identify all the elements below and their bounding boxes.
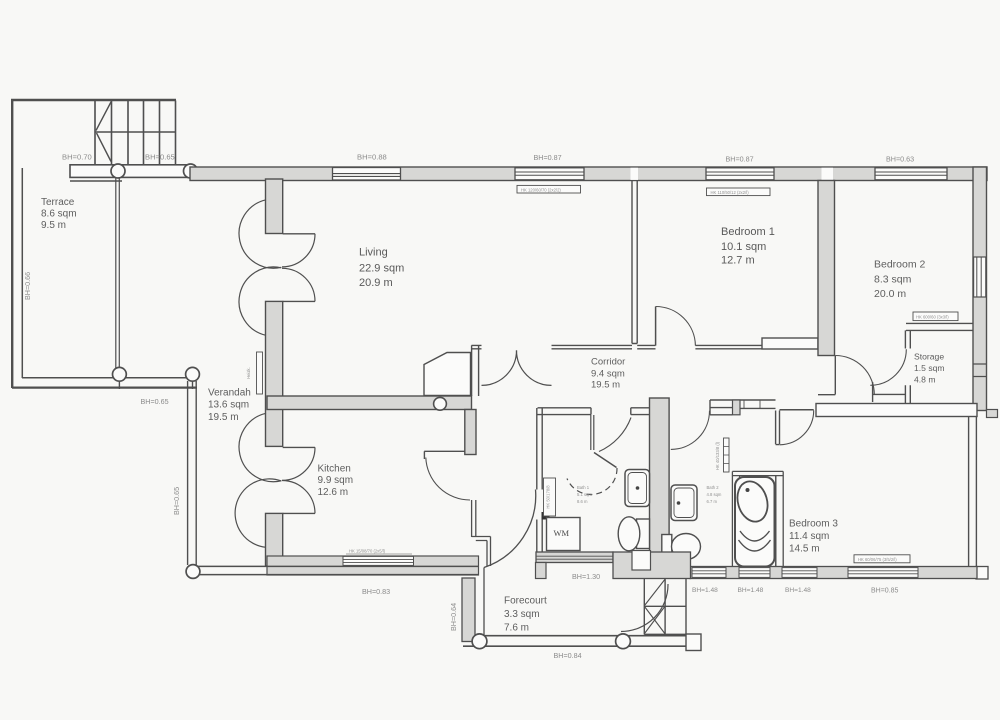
svg-text:Verandah: Verandah <box>208 388 251 399</box>
svg-text:5.1 sqm: 5.1 sqm <box>577 492 592 497</box>
svg-text:12.7 m: 12.7 m <box>721 254 755 266</box>
svg-text:BH=0.66: BH=0.66 <box>23 272 32 300</box>
svg-text:BH=1.30: BH=1.30 <box>572 572 600 581</box>
svg-text:Bedroom 2: Bedroom 2 <box>874 259 926 271</box>
svg-text:Corridor: Corridor <box>591 357 625 368</box>
svg-text:19.5 m: 19.5 m <box>591 380 620 391</box>
svg-text:BH=0.87: BH=0.87 <box>726 155 754 164</box>
svg-text:HK 15/08/70 (2x5/l): HK 15/08/70 (2x5/l) <box>349 549 386 554</box>
svg-text:Bath 1: Bath 1 <box>577 485 590 490</box>
svg-text:HK 60/06/75 (3/5/2/l): HK 60/06/75 (3/5/2/l) <box>858 557 897 562</box>
svg-text:Bedroom 3: Bedroom 3 <box>789 519 838 530</box>
svg-text:6.7 m: 6.7 m <box>707 499 718 504</box>
svg-text:Bedroom 1: Bedroom 1 <box>721 226 775 238</box>
svg-text:Terrace: Terrace <box>41 197 75 208</box>
svg-text:HK 120/60/70 (2x2/2): HK 120/60/70 (2x2/2) <box>521 187 561 192</box>
svg-text:BH=0.83: BH=0.83 <box>362 587 390 596</box>
svg-text:9.9 sqm: 9.9 sqm <box>318 475 354 486</box>
svg-text:HK 110/50/12 (2x2/l): HK 110/50/12 (2x2/l) <box>711 190 750 195</box>
svg-text:14.5 m: 14.5 m <box>789 544 820 555</box>
svg-text:BH=0.87: BH=0.87 <box>534 153 562 162</box>
svg-text:4.8 m: 4.8 m <box>914 375 936 385</box>
svg-text:Living: Living <box>359 247 388 259</box>
svg-text:1.5 sqm: 1.5 sqm <box>914 363 945 373</box>
svg-text:Kitchen: Kitchen <box>318 464 351 475</box>
svg-text:22.9 sqm: 22.9 sqm <box>359 262 404 274</box>
svg-text:12.6 m: 12.6 m <box>318 487 349 498</box>
svg-text:20.0 m: 20.0 m <box>874 288 906 300</box>
svg-text:3.3 sqm: 3.3 sqm <box>504 609 540 620</box>
svg-text:BH=0.70: BH=0.70 <box>62 153 92 162</box>
svg-text:8.6 sqm: 8.6 sqm <box>41 209 77 220</box>
svg-text:Bath 2: Bath 2 <box>707 485 720 490</box>
svg-text:BH=0.65: BH=0.65 <box>172 487 181 515</box>
svg-text:WM: WM <box>554 528 570 538</box>
svg-text:Heizk.: Heizk. <box>246 367 251 379</box>
svg-text:BH=0.85: BH=0.85 <box>871 588 899 595</box>
svg-text:BH=1.48: BH=1.48 <box>692 587 718 594</box>
svg-text:4.8 sqm: 4.8 sqm <box>707 492 722 497</box>
svg-text:9.4 sqm: 9.4 sqm <box>591 369 625 380</box>
svg-text:19.5 m: 19.5 m <box>208 412 239 423</box>
svg-text:HK 40/133/8 (l): HK 40/133/8 (l) <box>715 441 720 470</box>
svg-text:13.6 sqm: 13.6 sqm <box>208 400 249 411</box>
svg-text:BH=0.64: BH=0.64 <box>449 603 458 631</box>
svg-text:Forecourt: Forecourt <box>504 596 547 607</box>
svg-text:BH=0.65: BH=0.65 <box>141 397 169 406</box>
svg-text:11.4 sqm: 11.4 sqm <box>789 531 829 542</box>
svg-text:10.1 sqm: 10.1 sqm <box>721 241 766 253</box>
svg-text:Storage: Storage <box>914 352 944 362</box>
svg-text:20.9 m: 20.9 m <box>359 277 393 289</box>
svg-text:BH=0.88: BH=0.88 <box>357 153 387 162</box>
svg-text:BH=0.84: BH=0.84 <box>554 651 582 660</box>
svg-text:9.5 m: 9.5 m <box>41 220 66 231</box>
svg-text:BH=0.65: BH=0.65 <box>145 153 175 162</box>
svg-text:7.6 m: 7.6 m <box>504 623 529 634</box>
svg-text:BH=1.48: BH=1.48 <box>738 587 764 594</box>
svg-text:BH=0.63: BH=0.63 <box>886 155 914 164</box>
svg-text:8.6 m: 8.6 m <box>577 499 588 504</box>
svg-text:8.3 sqm: 8.3 sqm <box>874 273 912 285</box>
svg-text:HK 600/60 (3x3/l): HK 600/60 (3x3/l) <box>916 314 949 319</box>
svg-text:HK 50/178/8: HK 50/178/8 <box>546 485 551 509</box>
svg-text:BH=1.48: BH=1.48 <box>785 587 811 594</box>
